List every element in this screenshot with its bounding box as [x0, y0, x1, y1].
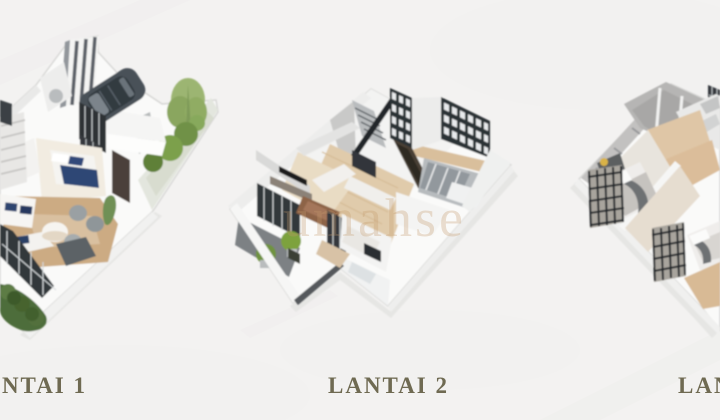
svg-text:umahse: umahse	[283, 188, 466, 248]
